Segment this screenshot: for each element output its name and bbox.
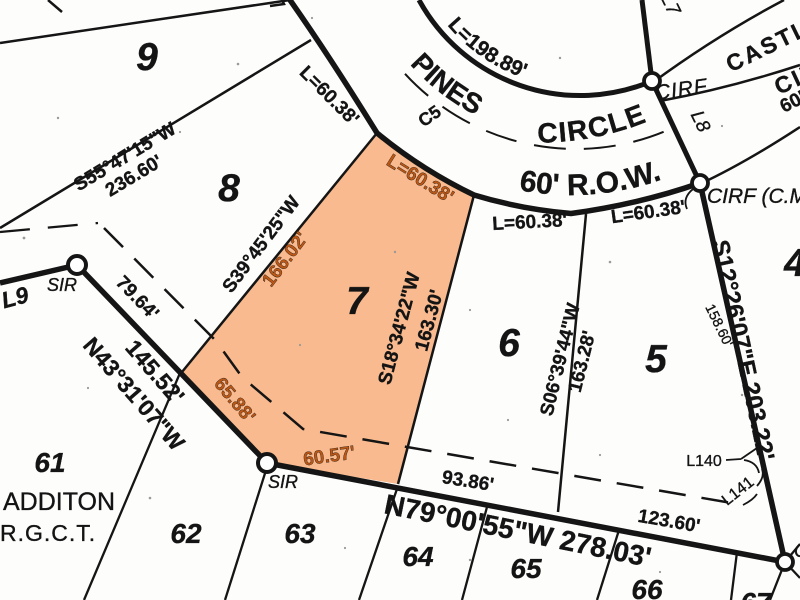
svg-text:4: 4 <box>783 242 800 285</box>
svg-text:R.G.C.T.: R.G.C.T. <box>0 520 96 546</box>
svg-text:66: 66 <box>631 574 663 600</box>
svg-text:5: 5 <box>645 338 668 381</box>
svg-text:8: 8 <box>218 167 240 210</box>
svg-text:L140: L140 <box>686 453 722 470</box>
svg-text:63: 63 <box>284 518 316 549</box>
svg-text:7: 7 <box>346 280 370 323</box>
svg-text:9: 9 <box>136 36 158 79</box>
svg-text:61: 61 <box>34 447 65 478</box>
svg-text:67: 67 <box>740 587 773 600</box>
svg-text:SIR: SIR <box>268 472 298 492</box>
svg-text:ADDITON: ADDITON <box>3 488 115 516</box>
svg-text:L=60.38': L=60.38' <box>492 210 568 235</box>
svg-text:CIR: CIR <box>794 541 800 562</box>
svg-text:65: 65 <box>510 553 542 584</box>
svg-text:6: 6 <box>498 322 520 365</box>
svg-text:CIRF (C.M.): CIRF (C.M.) <box>707 185 800 208</box>
svg-text:62: 62 <box>170 518 202 549</box>
svg-text:SIR: SIR <box>47 275 77 295</box>
svg-text:64: 64 <box>402 541 434 572</box>
